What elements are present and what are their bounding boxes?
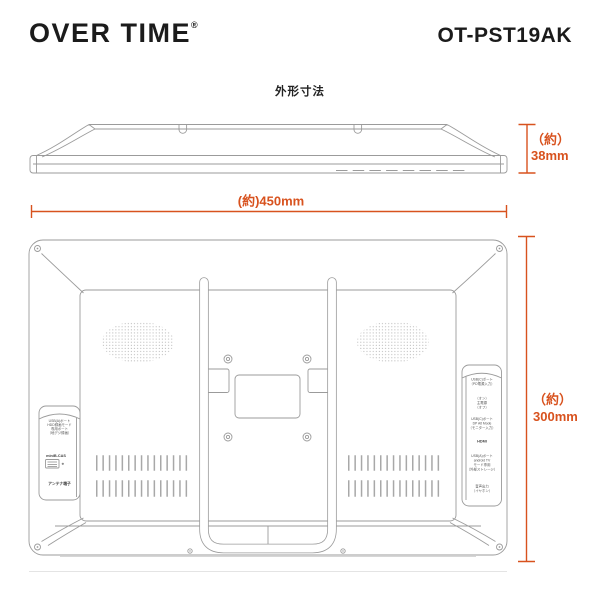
bevel-seam-top-left xyxy=(42,254,84,294)
audio-out-label-line2: （イヤホン） xyxy=(472,488,492,493)
androidtv-usb-label-line3: モード専用 xyxy=(474,462,491,467)
dp-usb-label-line1: USB(C)ポート xyxy=(471,416,493,421)
androidtv-usb-label-line1: USB(A)ポート xyxy=(471,453,493,458)
screw-hole xyxy=(224,433,232,441)
top-profile-view xyxy=(30,125,507,174)
antenna-label: アンテナ端子 xyxy=(48,481,71,486)
left-usb-label-line4: （地デジ録画） xyxy=(48,430,72,435)
corner-screw-dot xyxy=(37,248,39,250)
pd-usb-label-line2: （PD電源入力） xyxy=(469,381,494,386)
stand-outline xyxy=(204,282,332,549)
power-label-line3: （オフ） xyxy=(475,405,489,410)
speaker-grille-left xyxy=(102,322,174,363)
screw-hole-center xyxy=(305,435,308,438)
corner-screw-dot xyxy=(37,546,39,548)
dp-usb-label-line2: DP Alt Mode xyxy=(473,422,492,426)
power-label-line1: （オン） xyxy=(475,396,489,401)
wire-stand xyxy=(204,282,332,549)
hdmi-label: HDMI xyxy=(477,440,487,444)
bottom-screw-dot xyxy=(342,550,343,551)
corner-screw-dot xyxy=(499,248,501,250)
profile-right-bevel xyxy=(441,125,501,158)
androidtv-usb-label-line2: android TV xyxy=(474,459,491,463)
screw-hole xyxy=(303,433,311,441)
power-label-line2: 主電源 xyxy=(477,400,488,405)
stand-body xyxy=(204,282,332,549)
screw-hole-center xyxy=(226,357,229,360)
height-label-line2: 300mm xyxy=(533,409,578,424)
profile-left-bevel xyxy=(37,125,96,158)
vesa-plate xyxy=(235,375,300,418)
vent-slots xyxy=(96,463,440,489)
bevel-seam-top-right xyxy=(453,254,496,294)
height-label-line1: （約） xyxy=(533,392,572,407)
androidtv-usb-label-line4: （外部ストレージ） xyxy=(467,467,497,472)
vesa-screw-holes xyxy=(224,355,311,441)
bevel-seam-bottom-right xyxy=(450,518,496,546)
audio-out-label-line1: 音声出力 xyxy=(475,484,489,489)
depth-label-line1: （約） xyxy=(531,132,570,147)
product-dimension-page: OVER TIME® OT-PST19AK 外形寸法 （約） 38 xyxy=(0,0,600,600)
speaker-grille-right xyxy=(357,322,429,363)
corner-screw-dot xyxy=(499,546,501,548)
bcas-label: miniB-CAS xyxy=(46,454,66,458)
screw-hole xyxy=(303,355,311,363)
chassis-screws xyxy=(35,246,503,554)
width-label: (約)450mm xyxy=(238,194,304,209)
dimension-diagram: （約） 38mm (約)450mm （約） 300mm xyxy=(0,0,600,600)
back-view xyxy=(29,240,507,572)
screw-hole xyxy=(224,355,232,363)
back-outer-shell xyxy=(29,240,507,555)
bcas-eject-dot xyxy=(62,463,64,465)
screw-hole-center xyxy=(305,357,308,360)
pd-usb-label-line1: USB(C)ポート xyxy=(471,377,493,382)
depth-label-line2: 38mm xyxy=(531,148,569,163)
bevel-seam-bottom-left xyxy=(42,518,87,546)
screw-hole-center xyxy=(226,435,229,438)
dp-usb-label-line3: （モニター入力） xyxy=(468,425,495,430)
bottom-screw-dot xyxy=(189,550,190,551)
